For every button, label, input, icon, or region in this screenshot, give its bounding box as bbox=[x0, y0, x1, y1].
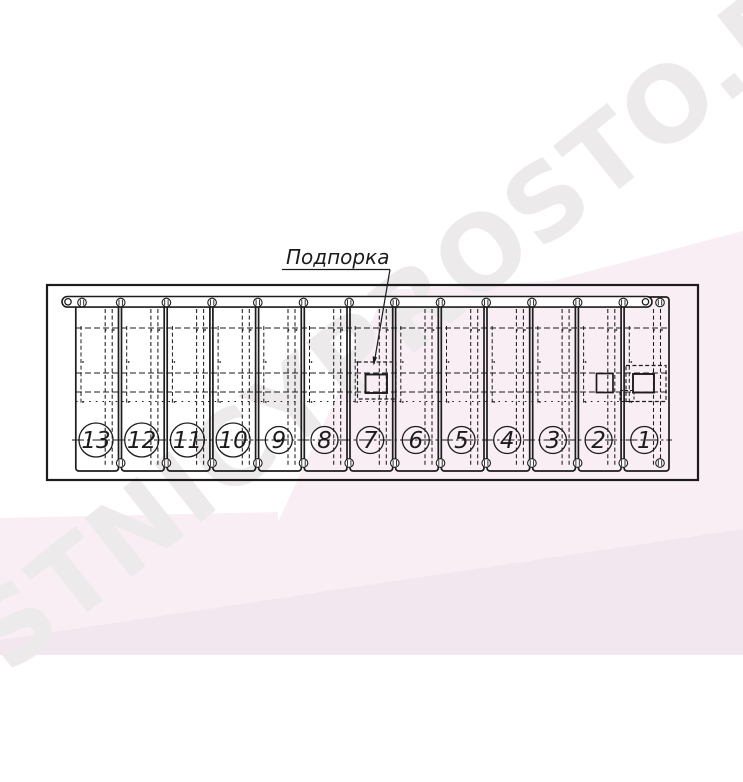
screw-circle bbox=[619, 298, 628, 307]
bar-body bbox=[62, 297, 652, 308]
tread-column: 3 bbox=[533, 297, 576, 471]
point-mark bbox=[265, 401, 267, 403]
point-mark bbox=[151, 329, 153, 331]
hidden-edge-lines bbox=[72, 328, 672, 440]
point-mark bbox=[470, 329, 472, 331]
point-mark bbox=[219, 401, 221, 403]
screw-icon bbox=[299, 459, 308, 468]
point-mark bbox=[333, 329, 335, 331]
support-detail-right bbox=[597, 366, 667, 402]
point-mark bbox=[242, 329, 244, 331]
point-mark bbox=[174, 401, 176, 403]
step-number: 2 bbox=[591, 428, 606, 454]
step-number: 1 bbox=[637, 428, 652, 454]
point-mark bbox=[448, 401, 450, 403]
screw-circle bbox=[573, 298, 582, 307]
point-mark bbox=[448, 361, 450, 363]
screw-circle bbox=[116, 298, 125, 307]
screw-circle bbox=[208, 298, 217, 307]
point-mark bbox=[174, 361, 176, 363]
point-mark bbox=[562, 329, 564, 331]
tread-columns: 13121110987654321 bbox=[76, 297, 669, 471]
point-mark bbox=[433, 329, 435, 331]
screw-icon bbox=[482, 459, 491, 468]
point-mark bbox=[493, 401, 495, 403]
tread-column: 9 bbox=[259, 297, 302, 471]
screw-circle bbox=[253, 298, 262, 307]
screw-circle bbox=[116, 459, 125, 468]
screw-icon bbox=[391, 298, 400, 307]
point-mark bbox=[105, 329, 107, 331]
tread-column: 6 bbox=[396, 297, 439, 471]
tread-column: 5 bbox=[441, 297, 484, 471]
screw-icon bbox=[482, 298, 491, 307]
screw-circle bbox=[656, 298, 665, 307]
screw-icon bbox=[436, 298, 445, 307]
step-number: 4 bbox=[500, 428, 515, 454]
point-mark bbox=[387, 329, 389, 331]
screw-icon bbox=[253, 459, 262, 468]
screw-circle bbox=[345, 459, 354, 468]
step-number: 6 bbox=[408, 428, 423, 454]
point-mark bbox=[615, 329, 617, 331]
point-mark bbox=[524, 329, 526, 331]
support-detail-left bbox=[358, 362, 397, 399]
step-number: 11 bbox=[173, 428, 202, 454]
step-number: 9 bbox=[271, 428, 286, 454]
leader-line bbox=[374, 270, 390, 365]
point-mark bbox=[82, 361, 84, 363]
screw-icon bbox=[436, 459, 445, 468]
screw-icon bbox=[528, 459, 537, 468]
screw-icon bbox=[253, 298, 262, 307]
screw-circle bbox=[253, 459, 262, 468]
screw-circle bbox=[436, 298, 445, 307]
screw-icon bbox=[208, 298, 217, 307]
point-mark bbox=[311, 401, 313, 403]
step-number: 8 bbox=[317, 428, 332, 454]
tread-column: 11 bbox=[167, 297, 210, 471]
screw-icon bbox=[162, 459, 171, 468]
tread-column: 10 bbox=[213, 297, 256, 471]
step-number: 5 bbox=[454, 428, 469, 454]
point-mark bbox=[311, 361, 313, 363]
tread-column: 1 bbox=[624, 297, 669, 471]
screw-circle bbox=[162, 298, 171, 307]
screw-icon bbox=[78, 298, 87, 307]
tread-column: 2 bbox=[578, 297, 621, 471]
step-number: 7 bbox=[363, 428, 378, 454]
point-mark bbox=[159, 329, 161, 331]
step-number: 10 bbox=[218, 428, 247, 454]
screw-circle bbox=[482, 298, 491, 307]
point-mark bbox=[607, 329, 609, 331]
screw-circle bbox=[391, 459, 400, 468]
screw-circle bbox=[528, 298, 537, 307]
tread-column: 12 bbox=[122, 297, 165, 471]
point-mark bbox=[82, 401, 84, 403]
screw-icon bbox=[345, 459, 354, 468]
screw-circle bbox=[299, 298, 308, 307]
support-label: Подпорка bbox=[286, 245, 389, 269]
screw-circle bbox=[656, 459, 665, 468]
point-mark bbox=[402, 361, 404, 363]
point-mark bbox=[113, 329, 115, 331]
point-mark bbox=[630, 361, 632, 363]
screw-circle bbox=[299, 459, 308, 468]
screw-icon bbox=[299, 298, 308, 307]
screw-icon bbox=[619, 298, 628, 307]
tread-column: 8 bbox=[304, 297, 347, 471]
screw-circle bbox=[528, 459, 537, 468]
point-mark bbox=[128, 361, 130, 363]
top-bar bbox=[62, 297, 652, 308]
screw-circle bbox=[391, 298, 400, 307]
point-mark bbox=[204, 329, 206, 331]
point-mark bbox=[539, 401, 541, 403]
point-mark bbox=[356, 401, 358, 403]
screw-icon bbox=[573, 459, 582, 468]
point-mark bbox=[265, 361, 267, 363]
point-mark bbox=[661, 329, 663, 331]
screw-icon bbox=[573, 298, 582, 307]
support-block-right bbox=[633, 374, 654, 393]
screw-icon bbox=[345, 298, 354, 307]
staircase-plan-drawing: 13121110987654321 Подпорка bbox=[0, 0, 743, 655]
point-mark bbox=[402, 401, 404, 403]
point-mark bbox=[493, 361, 495, 363]
point-mark bbox=[539, 361, 541, 363]
screw-icon bbox=[391, 459, 400, 468]
screw-icon bbox=[619, 459, 628, 468]
point-mark bbox=[250, 329, 252, 331]
point-mark bbox=[653, 329, 655, 331]
point-mark bbox=[128, 401, 130, 403]
screw-circle bbox=[208, 459, 217, 468]
screw-icon bbox=[208, 459, 217, 468]
support-plate-right bbox=[597, 374, 614, 393]
screw-circle bbox=[162, 459, 171, 468]
point-mark bbox=[288, 329, 290, 331]
point-mark bbox=[219, 361, 221, 363]
screw-circle bbox=[573, 459, 582, 468]
point-mark bbox=[296, 329, 298, 331]
point-mark bbox=[478, 329, 480, 331]
point-mark bbox=[585, 361, 587, 363]
point-mark bbox=[425, 329, 427, 331]
screw-icon bbox=[116, 298, 125, 307]
point-mark bbox=[585, 401, 587, 403]
tread-column: 13 bbox=[76, 297, 119, 471]
point-mark bbox=[196, 329, 198, 331]
screw-icon bbox=[656, 459, 665, 468]
screw-circle bbox=[78, 298, 87, 307]
screw-circle bbox=[436, 459, 445, 468]
point-mark bbox=[516, 329, 518, 331]
screw-icon bbox=[162, 298, 171, 307]
screw-icon bbox=[116, 459, 125, 468]
point-mark bbox=[570, 329, 572, 331]
step-number: 13 bbox=[81, 428, 110, 454]
step-number: 3 bbox=[546, 428, 561, 454]
screw-circle bbox=[482, 459, 491, 468]
leader-arrowhead bbox=[373, 356, 377, 365]
tread-column: 4 bbox=[487, 297, 530, 471]
support-block bbox=[366, 375, 388, 394]
screw-circle bbox=[345, 298, 354, 307]
point-mark bbox=[341, 329, 343, 331]
screw-circle bbox=[619, 459, 628, 468]
screw-icon bbox=[528, 298, 537, 307]
screw-icon bbox=[656, 298, 665, 307]
step-number: 12 bbox=[127, 428, 156, 454]
